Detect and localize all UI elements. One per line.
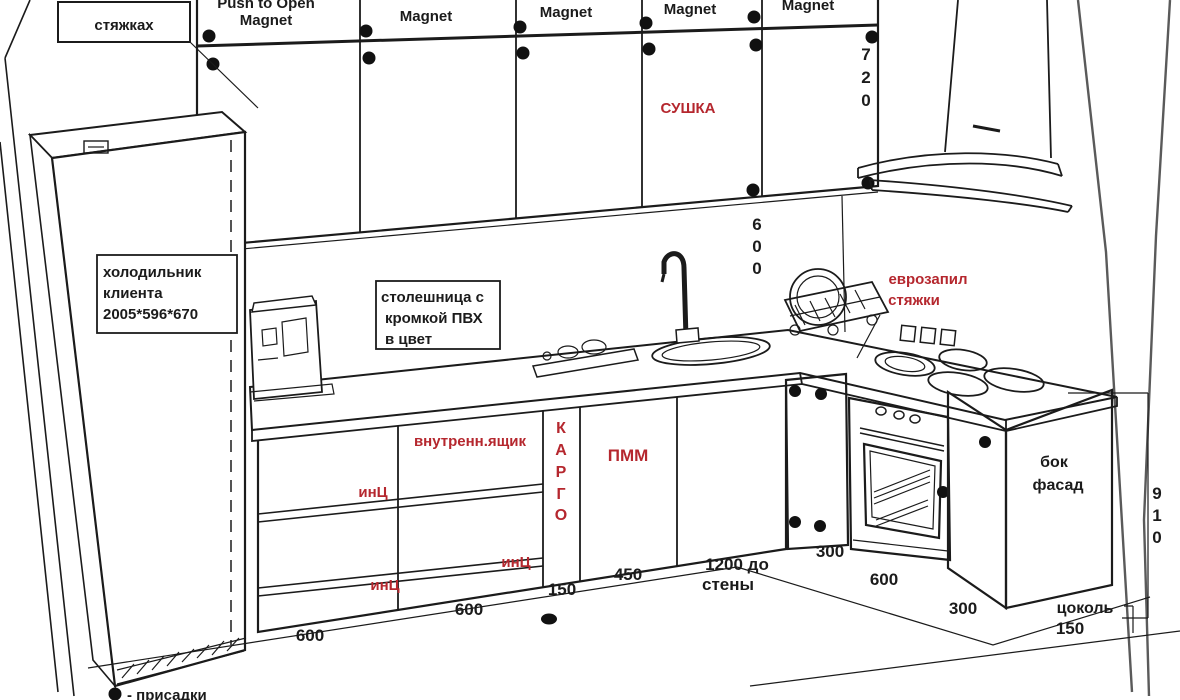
svg-text:кромкой ПВХ: кромкой ПВХ (385, 310, 483, 327)
dim-1200-line2: стены (702, 575, 754, 594)
door-label-magnet-1: Magnet (240, 12, 293, 29)
svg-text:К: К (556, 420, 566, 437)
ties-note-text: стяжках (94, 17, 154, 34)
svg-text:7: 7 (861, 45, 870, 64)
hinge-label-c: инЦ (370, 577, 399, 594)
hinge-label-b: инЦ (501, 554, 530, 571)
euro-cut-line1: еврозапил (888, 271, 967, 288)
dowel-dots-upper (203, 11, 879, 197)
door-label-magnet-3: Magnet (540, 4, 593, 21)
euro-cut-line2: стяжки (888, 292, 940, 309)
kitchen-plan-drawing: Push to Open Magnet Magnet Magnet Magnet… (0, 0, 1180, 700)
side-facade-line2: фасад (1032, 477, 1083, 494)
side-facade-line1: бок (1040, 454, 1069, 471)
dim-600-mid: 600 (455, 600, 483, 619)
door-label-push: Push to Open (217, 0, 315, 12)
dim-150-cargo: 150 (548, 580, 576, 599)
legend-text: - присадки (127, 687, 207, 700)
dish-rack (785, 269, 888, 335)
faucet (662, 254, 699, 343)
dowel-legend: - присадки (109, 687, 207, 700)
svg-text:клиента: клиента (103, 285, 163, 302)
legend-bullet (109, 688, 122, 700)
dim-720: 7 2 0 (861, 45, 870, 110)
dim-600-left: 600 (296, 626, 324, 645)
dimension-lines: 600 600 150 450 1200 до стены 300 600 30… (88, 393, 1162, 668)
door-label-magnet-2: Magnet (400, 8, 453, 25)
dim-600-wall-gap: 6 0 0 (752, 215, 761, 278)
kitchen-drawing-canvas: Push to Open Magnet Magnet Magnet Magnet… (0, 0, 1180, 700)
svg-text:2005*596*670: 2005*596*670 (103, 306, 198, 323)
svg-text:Р: Р (556, 464, 567, 481)
dim-300-b: 300 (949, 599, 977, 618)
cargo-label: К А Р Г О (555, 420, 567, 524)
dishwasher-label: ПММ (608, 446, 649, 465)
dim-1200-line1: 1200 до (705, 555, 769, 574)
svg-text:0: 0 (752, 259, 761, 278)
espresso-machine (250, 296, 334, 401)
svg-text:Г: Г (556, 486, 565, 503)
svg-text:холодильник: холодильник (103, 264, 202, 281)
dim-300-a: 300 (816, 542, 844, 561)
floor-dowel-dot (541, 614, 557, 625)
svg-text:9: 9 (1152, 484, 1161, 503)
svg-text:2: 2 (861, 68, 870, 87)
svg-text:6: 6 (752, 215, 761, 234)
svg-text:О: О (555, 507, 567, 524)
refrigerator (30, 112, 246, 686)
svg-text:столешница с: столешница с (381, 289, 484, 306)
svg-text:в цвет: в цвет (385, 331, 432, 348)
svg-text:А: А (555, 442, 567, 459)
dryer-cabinet-label: СУШКА (660, 100, 715, 117)
dim-910: 9 1 0 (1152, 484, 1161, 547)
dim-600-oven: 600 (870, 570, 898, 589)
door-label-magnet-4: Magnet (664, 1, 717, 18)
door-label-magnet-5: Magnet (782, 0, 835, 14)
svg-text:0: 0 (1152, 528, 1161, 547)
hinge-label-a: инЦ (358, 484, 387, 501)
wall-cabinets: Push to Open Magnet Magnet Magnet Magnet… (197, 0, 879, 253)
svg-text:0: 0 (752, 237, 761, 256)
cooktop-controls (900, 325, 955, 345)
dim-450-pmm: 450 (614, 565, 642, 584)
plinth-label: цоколь (1057, 600, 1114, 617)
range-hood (858, 0, 1072, 212)
plinth-value: 150 (1056, 619, 1084, 638)
inner-drawer-label: внутренн.ящик (414, 433, 527, 450)
svg-text:0: 0 (861, 91, 870, 110)
oven (849, 398, 950, 560)
svg-text:1: 1 (1152, 506, 1161, 525)
